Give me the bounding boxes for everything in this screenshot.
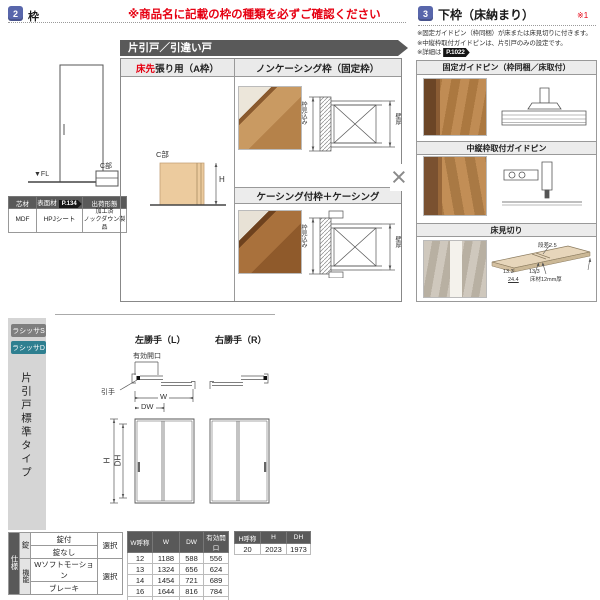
table-cell: 2023 <box>261 544 287 555</box>
floor-edge-photo <box>423 240 487 298</box>
wall-thickness-dim-label: 壁厚 <box>394 113 400 135</box>
w-table-header-0: W呼称 <box>128 532 153 553</box>
table-cell: 624 <box>204 564 229 575</box>
door-elevation-diagrams <box>100 415 295 510</box>
section-3-badge: 3 <box>418 6 433 21</box>
table-cell: 12 <box>128 553 153 564</box>
w-table-header-3: 有効開口 <box>204 532 229 553</box>
h-dim-label: H <box>219 175 225 184</box>
fixed-pin-header: 固定ガイドピン（枠同梱／床取付） <box>417 61 596 75</box>
h-dim-label-elevation: H <box>102 458 111 464</box>
noncasing-section-diagram <box>300 85 405 155</box>
w-table-header-1: W <box>153 532 180 553</box>
c-part-label: C部 <box>100 161 112 171</box>
table-row: 161644816784 <box>128 586 229 597</box>
table-cell: 784 <box>204 586 229 597</box>
noncasing-frame-photo <box>238 86 302 150</box>
table-cell: 1324 <box>153 564 180 575</box>
door-plan-diagrams <box>100 345 295 417</box>
material-spec-table: 芯材 表面材P.134 出荷形態 MDF HPJシート 加工済 ノックダウン製品 <box>8 196 127 233</box>
tab-lasissa-d[interactable]: ラシッサD <box>11 341 46 354</box>
note-line-2: ※中縦枠取付ガイドピンは、片引戸のみの設定です。 <box>417 39 599 49</box>
table-cell: 689 <box>204 575 229 586</box>
column-divider <box>234 59 235 301</box>
note-line-3: ※詳細はP.1022 <box>417 48 599 58</box>
table-row: 仕様 錠 錠付 選択 <box>9 533 123 546</box>
fixed-pin-photo <box>423 78 487 136</box>
bottom-rail-notes: ※固定ガイドピン（枠同梱）が床または床見切りに付きます。 ※中縦枠取付ガイドピン… <box>417 29 599 58</box>
table-header-row: H呼称 H DH <box>235 532 311 544</box>
handle-label: 引手 <box>101 387 115 397</box>
catalog-page: 2 枠 ※商品名に記載の枠の種類を必ずご確認ください ▼FL C部 芯材 表面材… <box>0 0 600 600</box>
casing-header: ケーシング付枠＋ケーシング <box>235 187 401 204</box>
floor-first-header: 床先張り用（A枠） <box>121 59 234 77</box>
h-table-header-0: H呼称 <box>235 532 261 544</box>
frame-type-warning: ※商品名に記載の枠の種類を必ずご確認ください <box>128 6 381 22</box>
c-part-section-diagram <box>148 158 228 208</box>
casing-section-diagram <box>300 208 405 278</box>
table-header-row: W呼称 W DW 有効開口 <box>128 532 229 553</box>
table-cell: 14 <box>128 575 153 586</box>
w-table-header-2: DW <box>180 532 204 553</box>
lock-select: 選択 <box>98 533 123 559</box>
table-cell: 588 <box>180 553 204 564</box>
table-cell: 1973 <box>287 544 311 555</box>
floor-first-header-rest: 張り用（A枠） <box>155 61 219 75</box>
floor-edge-right-dim: 13.3 <box>529 270 540 276</box>
frame-depth-dim-label-2: 枠見込み <box>300 224 306 270</box>
page-ref-badge-1022: P.1022 <box>443 48 470 57</box>
table-cell: 1454 <box>153 575 180 586</box>
function-group-header: 機能 <box>20 569 30 583</box>
section-divider-line <box>55 314 275 315</box>
door-types-banner: 片引戸／引違い戸 <box>120 40 408 56</box>
height-dimensions-table: H呼称 H DH 2020231973 <box>234 531 311 555</box>
spec-selection-table: 仕様 錠 錠付 選択 錠なし 機能 Wソフトモーション 選択 ブレーキ <box>8 532 123 595</box>
door-frame-elevation-diagram <box>10 48 125 196</box>
dw-dim-label: DW <box>139 402 156 411</box>
lock-option-2: 錠なし <box>31 546 98 559</box>
floor-edge-left-dim: 13.3 <box>503 270 514 276</box>
frame-depth-dim-label: 枠見込み <box>300 101 306 147</box>
wall-thickness-dim-label-2: 壁厚 <box>394 236 400 258</box>
material-value-core: MDF <box>9 209 37 233</box>
section-2-badge: 2 <box>8 6 23 21</box>
table-cell: 656 <box>180 564 204 575</box>
lock-option-1: 錠付 <box>31 533 98 546</box>
h-table-header-2: DH <box>287 532 311 544</box>
dh-dim-label-elevation: DH <box>113 455 122 467</box>
fixed-pin-diagram <box>498 82 590 134</box>
table-row: 141454721689 <box>128 575 229 586</box>
function-option-1: Wソフトモーション <box>31 559 98 582</box>
table-row: 181824906874 <box>128 597 229 600</box>
table-cell: 1644 <box>153 586 180 597</box>
note-line-3-text: ※詳細は <box>417 49 441 56</box>
material-header-core: 芯材 <box>9 197 37 209</box>
table-cell: 874 <box>204 597 229 600</box>
table-cell: 16 <box>128 586 153 597</box>
floor-material-dim: 床材12mm厚 <box>530 278 562 284</box>
table-cell: 1824 <box>153 597 180 600</box>
noncasing-header: ノンケーシング枠（固定枠） <box>234 59 401 77</box>
function-option-2: ブレーキ <box>31 582 98 595</box>
casing-frame-photo <box>238 210 302 274</box>
note-line-1: ※固定ガイドピン（枠同梱）が床または床見切りに付きます。 <box>417 29 599 39</box>
material-header-surface: 表面材P.134 <box>37 197 83 209</box>
width-dimensions-table: W呼称 W DW 有効開口 12118858855613132465662414… <box>127 531 229 600</box>
floor-first-header-red: 床先 <box>136 61 155 75</box>
mid-frame-pin-header: 中縦枠取付ガイドピン <box>417 141 596 155</box>
divider-dotted-right <box>418 25 596 26</box>
table-cell: 816 <box>180 586 204 597</box>
mid-frame-pin-photo <box>423 156 487 216</box>
table-row: 131324656624 <box>128 564 229 575</box>
divider-dotted-left <box>8 22 406 23</box>
product-type-side-label: 片引戸標準タイプ <box>19 372 34 522</box>
table-cell: 13 <box>128 564 153 575</box>
h-table-header-1: H <box>261 532 287 544</box>
floor-edge-step-dim: 段差2.5 <box>538 244 557 250</box>
table-cell: 18 <box>128 597 153 600</box>
times-mark: × <box>390 164 408 191</box>
tab-lasissa-s[interactable]: ラシッサS <box>11 324 46 337</box>
spec-row-header: 仕様 <box>9 555 20 570</box>
floor-edge-total-dim: 24.4 <box>508 278 519 284</box>
floor-edge-header: 床見切り <box>417 223 596 237</box>
table-row: 2020231973 <box>235 544 311 555</box>
w-dim-label: W <box>158 392 169 401</box>
material-value-surface: HPJシート <box>37 209 83 233</box>
table-cell: 721 <box>180 575 204 586</box>
table-cell: 906 <box>180 597 204 600</box>
table-cell: 20 <box>235 544 261 555</box>
table-cell: 556 <box>204 553 229 564</box>
table-cell: 1188 <box>153 553 180 564</box>
ref-mark-1: ※1 <box>577 11 588 20</box>
fl-level-label: ▼FL <box>34 171 49 178</box>
page-ref-badge: P.134 <box>59 200 82 208</box>
lock-group-header: 錠 <box>20 541 31 549</box>
material-header-surface-label: 表面材 <box>37 200 57 207</box>
table-row: 121188588556 <box>128 553 229 564</box>
table-row: 機能 Wソフトモーション 選択 <box>9 559 123 582</box>
function-select: 選択 <box>98 559 123 595</box>
section-3-title: 下枠（床納まり） <box>438 6 534 23</box>
mid-frame-pin-diagram <box>500 160 584 208</box>
